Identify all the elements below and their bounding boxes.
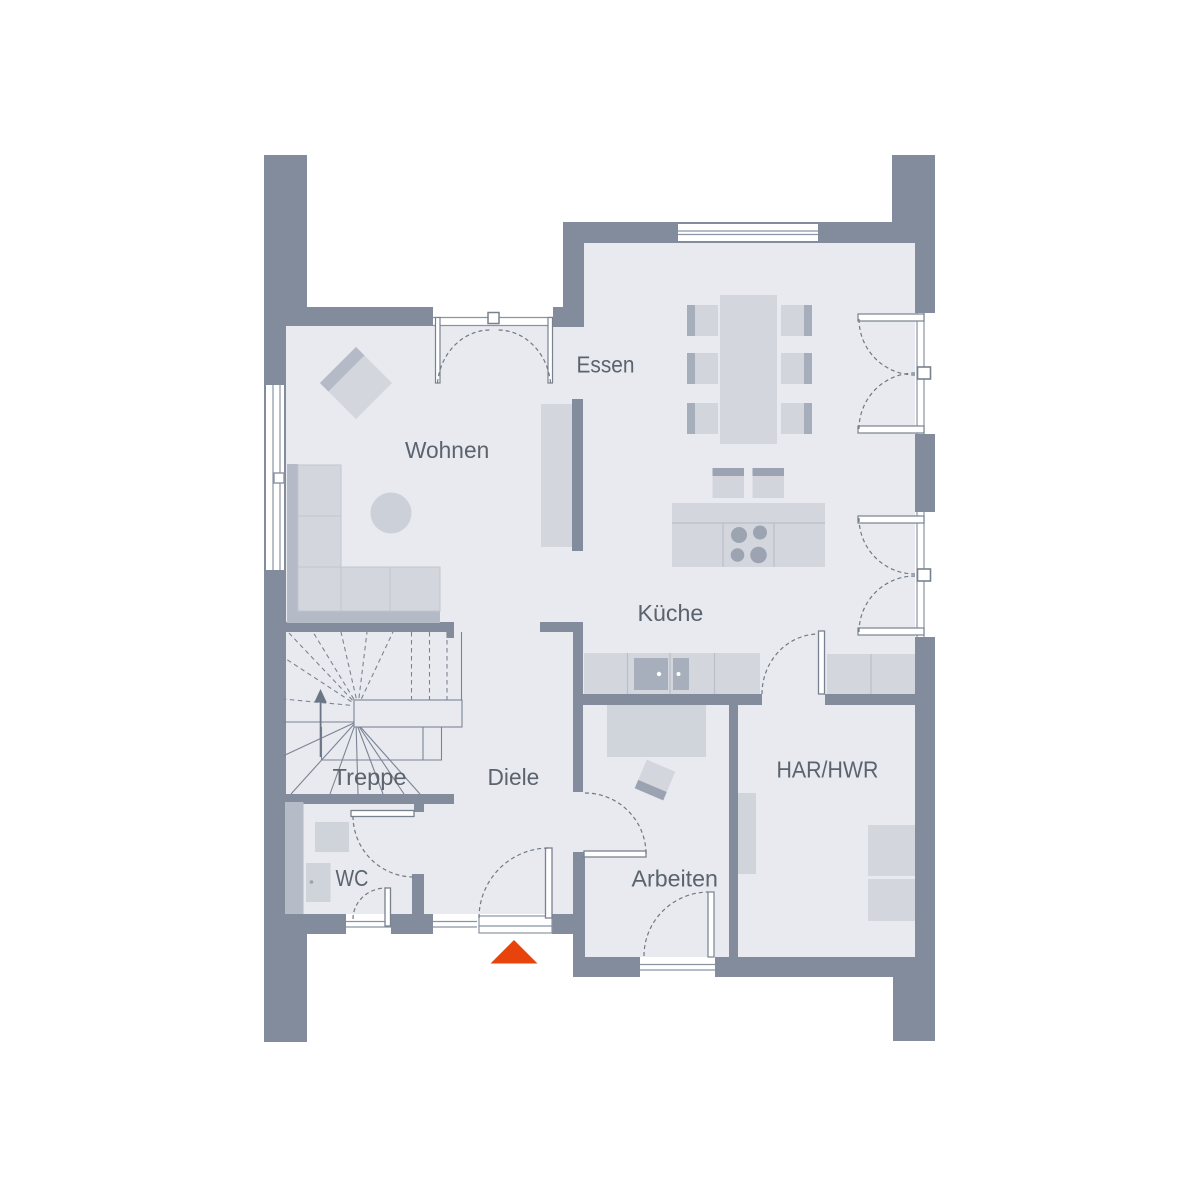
svg-text:WC: WC — [336, 866, 369, 892]
svg-text:Wohnen: Wohnen — [405, 437, 489, 463]
svg-text:HAR/HWR: HAR/HWR — [777, 757, 879, 783]
svg-text:Diele: Diele — [488, 764, 540, 790]
svg-text:Küche: Küche — [638, 600, 704, 626]
svg-text:Arbeiten: Arbeiten — [632, 866, 718, 892]
svg-text:Essen: Essen — [577, 352, 635, 378]
svg-text:Treppe: Treppe — [333, 764, 407, 790]
